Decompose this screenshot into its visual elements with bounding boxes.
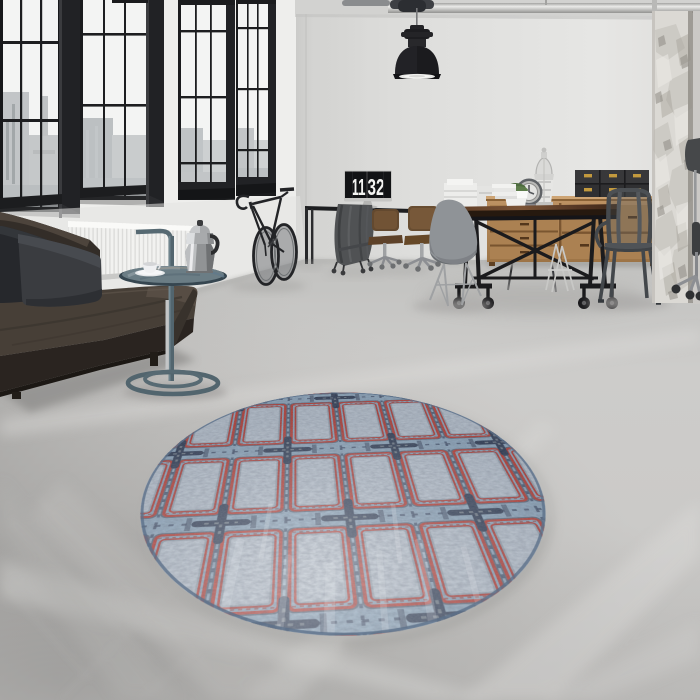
svg-text:32: 32 — [368, 174, 385, 200]
svg-text:11: 11 — [352, 174, 366, 200]
